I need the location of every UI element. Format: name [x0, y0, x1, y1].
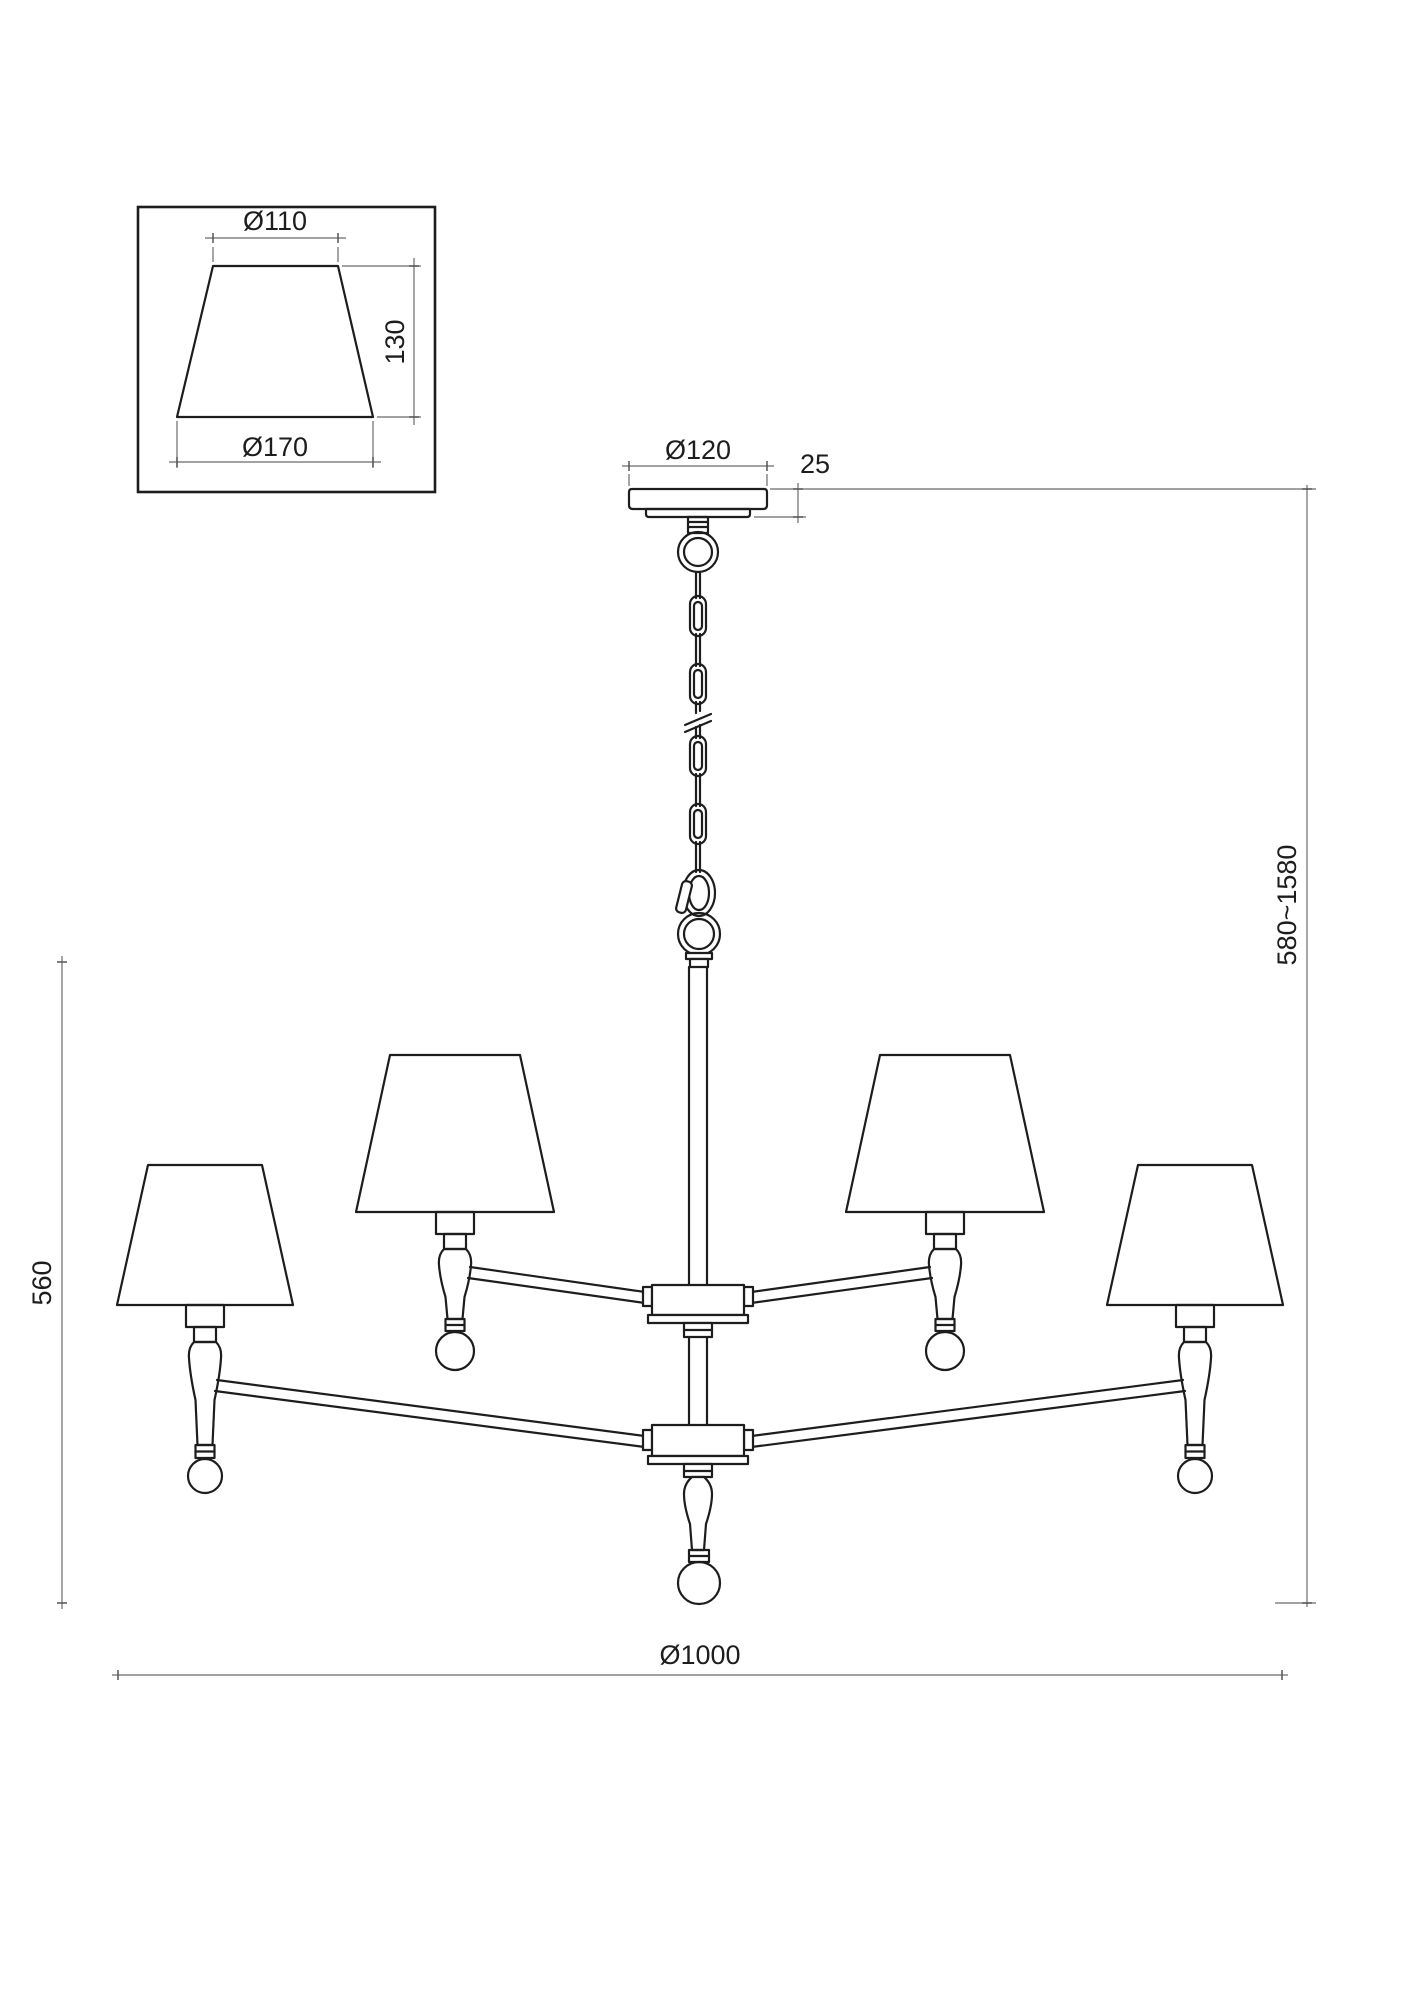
dim-body-height: 560 — [27, 956, 67, 1609]
lamp-lower-right — [1107, 1165, 1283, 1493]
chandelier-dimension-drawing: Ø110 130 Ø170 — [0, 0, 1413, 2000]
label-canopy-diameter: Ø120 — [665, 435, 731, 465]
chain-side-links — [696, 572, 700, 872]
carabiner-hook — [675, 870, 715, 916]
hanging-ring-bottom — [678, 913, 720, 967]
dim-canopy-height: 25 — [754, 449, 1316, 523]
technical-drawing-sheet: Ø110 130 Ø170 — [0, 0, 1413, 2000]
upper-hub — [643, 1285, 753, 1337]
lamp-upper-left — [356, 1055, 554, 1370]
center-rod — [689, 967, 707, 1477]
arm-lower-right — [744, 1380, 1185, 1448]
lower-hub — [643, 1425, 753, 1477]
canopy-nipple — [688, 517, 708, 533]
hanging-ring-top — [678, 532, 718, 572]
arm-upper-right — [744, 1267, 932, 1304]
ceiling-canopy — [629, 489, 767, 533]
dim-height-range: 580~1580 — [1272, 485, 1316, 1607]
dim-shade-top-diameter: Ø110 — [205, 206, 346, 262]
label-body-height: 560 — [27, 1260, 57, 1305]
label-shade-top-diameter: Ø110 — [243, 206, 307, 236]
dim-shade-bottom-diameter: Ø170 — [169, 421, 381, 468]
arm-lower-left — [215, 1380, 652, 1448]
dim-shade-height: 130 — [342, 258, 421, 425]
chandelier-view — [117, 489, 1283, 1604]
dim-canopy-diameter: Ø120 — [622, 435, 774, 486]
lamp-lower-left — [117, 1165, 293, 1493]
chain — [685, 572, 711, 872]
chain-break-mark — [685, 714, 711, 732]
rod-collar — [690, 959, 708, 967]
label-canopy-height: 25 — [800, 449, 830, 479]
lamp-upper-right — [846, 1055, 1044, 1370]
bottom-finial — [678, 1477, 720, 1604]
label-total-diameter: Ø1000 — [659, 1640, 740, 1670]
arm-upper-left — [468, 1267, 652, 1304]
bottom-ball — [678, 1562, 720, 1604]
label-shade-bottom-diameter: Ø170 — [242, 432, 308, 462]
label-shade-height: 130 — [380, 319, 410, 364]
label-height-range: 580~1580 — [1272, 845, 1302, 966]
detail-shade-outline — [177, 266, 373, 417]
shade-detail-view: Ø110 130 Ø170 — [138, 206, 435, 492]
dim-total-diameter: Ø1000 — [112, 1640, 1288, 1680]
